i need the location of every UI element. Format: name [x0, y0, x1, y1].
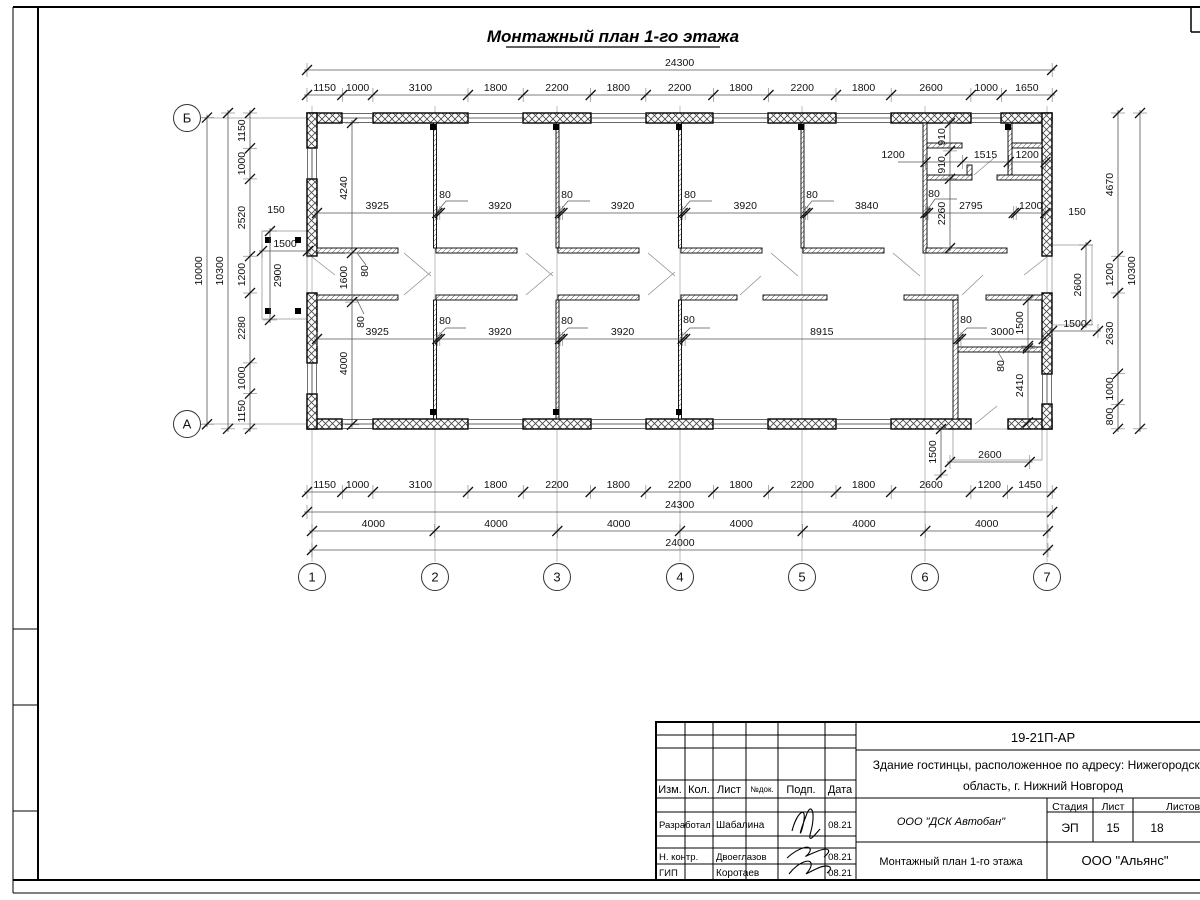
dim-label: 10300	[214, 256, 226, 285]
stamp-col-list: Лист	[717, 784, 741, 796]
partition-wall	[801, 123, 804, 248]
axis-label: 1	[308, 570, 315, 585]
dim-label: 3100	[409, 82, 433, 94]
stamp-col-kol: Кол.	[688, 784, 710, 796]
dim-label: 24300	[665, 499, 694, 511]
axis-label: А	[183, 417, 192, 432]
stamp-name-ncontrol: Двоеглазов	[716, 852, 767, 863]
partition-wall	[558, 295, 639, 300]
dim-label: 2600	[978, 449, 1002, 461]
partition-wall	[1008, 123, 1012, 180]
partition-walls	[317, 123, 1042, 419]
stamp-stage-label: Стадия	[1052, 801, 1088, 813]
dim-label: 3925	[366, 200, 390, 212]
stamp-sheet-label: Лист	[1102, 801, 1125, 813]
dim-label: 1500	[1063, 318, 1087, 330]
partition-wall	[317, 295, 398, 300]
exterior-wall	[768, 113, 836, 123]
dim-label: 1150	[313, 82, 336, 94]
dim-label: 3920	[488, 326, 512, 338]
partition-wall	[926, 248, 1007, 253]
dim-label: 910	[936, 128, 948, 146]
dim-label: 1200	[978, 479, 1002, 491]
axis-label: 7	[1043, 570, 1050, 585]
dim-label: 2520	[236, 206, 248, 230]
dim-label: 80	[355, 316, 367, 328]
stamp-object-name-line1: Здание гостинцы, расположенное по адресу…	[873, 758, 1200, 772]
dim-label: 1000	[236, 366, 248, 390]
dim-label: 80	[561, 189, 573, 201]
partition-wall	[556, 300, 559, 419]
axis-label: 5	[798, 570, 805, 585]
exterior-wall	[646, 113, 713, 123]
signature-gip	[789, 861, 830, 874]
dim-label: 80	[995, 360, 1007, 372]
partition-wall	[803, 248, 884, 253]
dim-label: 2630	[1104, 321, 1116, 345]
partition-wall	[317, 248, 398, 253]
partition-wall	[763, 295, 827, 300]
dim-label: 4670	[1104, 173, 1116, 197]
axis-label: Б	[183, 111, 192, 126]
stamp-contractor-org: ООО "ДСК Автобан"	[897, 816, 1006, 828]
stamp-role-ncontrol: Н. контр.	[659, 852, 698, 863]
exterior-wall	[307, 113, 317, 148]
axis-label: 3	[553, 570, 560, 585]
dim-label: 3920	[611, 200, 635, 212]
dim-label: 4000	[975, 518, 999, 530]
dim-label: 2260	[936, 202, 948, 226]
dim-label: 1800	[484, 479, 508, 491]
dim-label: 2410	[1014, 374, 1026, 398]
dim-label: 80	[561, 315, 573, 327]
dim-label: 80	[806, 189, 818, 201]
stamp-role-gip: ГИП	[659, 868, 678, 879]
dim-label: 1000	[975, 82, 999, 94]
wall-cap	[676, 124, 682, 130]
dim-label: 150	[1068, 206, 1086, 218]
dim-label: 2200	[545, 479, 569, 491]
dim-label: 2200	[668, 479, 692, 491]
axis-label: 2	[431, 570, 438, 585]
drawing-sheet: 2430011501000310018002200180022001800220…	[0, 0, 1200, 900]
exterior-wall	[1042, 113, 1052, 256]
dim-label: 1150	[236, 119, 248, 142]
dim-label: 3000	[991, 326, 1015, 338]
dim-label: 3920	[734, 200, 758, 212]
wall-cap	[1005, 124, 1011, 130]
dim-label: 4240	[338, 176, 350, 200]
stamp-date-gip: 08.21	[828, 868, 852, 879]
dim-label: 2200	[668, 82, 692, 94]
dim-label: 80	[684, 189, 696, 201]
dim-label: 2200	[545, 82, 569, 94]
drawing-title: Монтажный план 1-го этажа	[487, 27, 739, 47]
axis-label: 6	[921, 570, 928, 585]
dim-label: 4000	[852, 518, 876, 530]
partition-wall	[953, 300, 958, 419]
exterior-wall	[891, 419, 971, 429]
signature-developer	[792, 809, 820, 838]
dim-label: 80	[928, 188, 940, 200]
exterior-wall	[646, 419, 713, 429]
dim-label: 2200	[791, 479, 815, 491]
dim-label: 2200	[791, 82, 815, 94]
stamp-sheets-value: 18	[1150, 821, 1164, 835]
exterior-wall	[307, 394, 317, 429]
partition-wall	[967, 165, 972, 175]
dim-label: 1000	[346, 82, 370, 94]
dim-label: 3920	[488, 200, 512, 212]
stamp-sheet-value: 15	[1106, 821, 1120, 835]
dim-label: 1150	[313, 479, 336, 491]
dim-label: 1200	[1019, 200, 1043, 212]
stamp-sheets-label: Листов	[1166, 801, 1200, 813]
stamp-design-org: ООО "Альянс"	[1082, 853, 1169, 868]
exterior-wall	[373, 113, 468, 123]
partition-wall	[923, 123, 927, 253]
partition-wall	[1012, 143, 1042, 148]
wall-cap	[553, 124, 559, 130]
dim-label: 80	[439, 315, 451, 327]
dim-label: 1200	[236, 263, 248, 287]
partition-wall	[681, 248, 762, 253]
dim-label: 4000	[730, 518, 754, 530]
dim-label: 1200	[1104, 263, 1116, 287]
dim-label: 1800	[852, 82, 876, 94]
wall-cap	[430, 409, 436, 415]
stamp-name-gip: Коротаев	[716, 868, 759, 879]
stamp-date-developer: 08.21	[828, 820, 852, 831]
partition-wall	[679, 300, 682, 419]
dim-label: 1800	[484, 82, 508, 94]
dim-label: 10300	[1126, 256, 1138, 285]
stamp-date-ncontrol: 08.21	[828, 852, 852, 863]
dim-label: 4000	[362, 518, 386, 530]
stamp-col-izm: Изм.	[658, 784, 682, 796]
dim-label: 1500	[1014, 311, 1026, 335]
dim-label: 2600	[919, 82, 943, 94]
dim-label: 1600	[338, 266, 350, 290]
stamp-name-developer: Шабалина	[716, 819, 765, 831]
dim-label: 1515	[974, 149, 998, 161]
dim-label: 1800	[729, 479, 753, 491]
dim-label: 800	[1104, 408, 1116, 426]
dim-label: 1800	[607, 82, 631, 94]
dim-label: 24300	[665, 57, 694, 69]
dim-label: 1200	[1015, 149, 1039, 161]
dim-label: 4000	[607, 518, 631, 530]
stamp-object-name-line2: область, г. Нижний Новгород	[963, 779, 1123, 793]
dim-label: 2900	[272, 264, 284, 288]
wall-cap	[553, 409, 559, 415]
partition-wall	[558, 248, 639, 253]
dim-label: 1800	[607, 479, 631, 491]
dim-label: 8915	[810, 326, 834, 338]
exterior-wall	[523, 419, 591, 429]
dim-label: 80	[683, 314, 695, 326]
partition-wall	[904, 295, 958, 300]
dim-label: 1500	[927, 440, 939, 464]
stamp-col-data: Дата	[828, 784, 853, 796]
dim-label: 4000	[338, 352, 350, 376]
dim-label: 1450	[1018, 479, 1042, 491]
dim-label: 2280	[236, 316, 248, 340]
partition-wall	[434, 123, 437, 248]
dim-label: 3100	[409, 479, 433, 491]
dim-label: 3840	[855, 200, 879, 212]
partition-wall	[436, 248, 517, 253]
axis-label: 4	[676, 570, 683, 585]
dim-label: 2600	[919, 479, 943, 491]
exterior-wall	[523, 113, 591, 123]
dim-label: 1200	[881, 149, 905, 161]
stamp-drawing-name: Монтажный план 1-го этажа	[879, 856, 1023, 868]
signature-ncontrol	[787, 847, 829, 858]
dim-label: 1000	[236, 152, 248, 176]
page-title: Монтажный план 1-го этажа	[487, 27, 739, 46]
dim-label: 80	[439, 189, 451, 201]
wall-cap	[430, 124, 436, 130]
dim-label: 1000	[346, 479, 370, 491]
title-block: Изм. Кол. Лист №док. Подп. Дата Разработ…	[656, 722, 1200, 880]
stamp-col-ndok: №док.	[750, 785, 773, 794]
partition-wall	[679, 123, 682, 248]
stamp-col-podp: Подп.	[786, 784, 815, 796]
partition-wall	[434, 300, 437, 419]
exterior-wall	[307, 293, 317, 363]
dim-label: 1150	[236, 400, 248, 423]
dim-label: 80	[359, 265, 371, 277]
exterior-wall	[373, 419, 468, 429]
dim-label: 1800	[852, 479, 876, 491]
dim-label: 10000	[193, 256, 205, 285]
dim-label: 3925	[366, 326, 390, 338]
wall-cap	[798, 124, 804, 130]
porch-post	[295, 308, 301, 314]
exterior-wall	[1042, 404, 1052, 429]
stamp-stage-value: ЭП	[1061, 821, 1078, 835]
partition-wall	[997, 175, 1042, 180]
dim-label: 2600	[1072, 273, 1084, 297]
partition-wall	[436, 295, 517, 300]
dim-label: 910	[936, 156, 948, 174]
dim-label: 24000	[665, 537, 694, 549]
partition-wall	[681, 295, 737, 300]
dim-label: 3920	[611, 326, 635, 338]
dimensions: 2430011501000310018002200180022001800220…	[193, 57, 1147, 557]
wall-cap	[676, 409, 682, 415]
dim-label: 80	[960, 314, 972, 326]
stamp-role-developer: Разработал	[659, 820, 711, 831]
dim-label: 2795	[959, 200, 983, 212]
exterior-wall	[891, 113, 971, 123]
dim-label: 150	[267, 204, 285, 216]
exterior-wall	[768, 419, 836, 429]
dim-label: 1800	[729, 82, 753, 94]
dim-label: 1500	[273, 238, 297, 250]
dim-label: 1000	[1104, 377, 1116, 401]
partition-wall	[986, 295, 1042, 300]
dim-label: 1650	[1015, 82, 1039, 94]
partition-wall	[556, 123, 559, 248]
dim-label: 4000	[484, 518, 508, 530]
stamp-project-code: 19-21П-АР	[1011, 730, 1075, 745]
